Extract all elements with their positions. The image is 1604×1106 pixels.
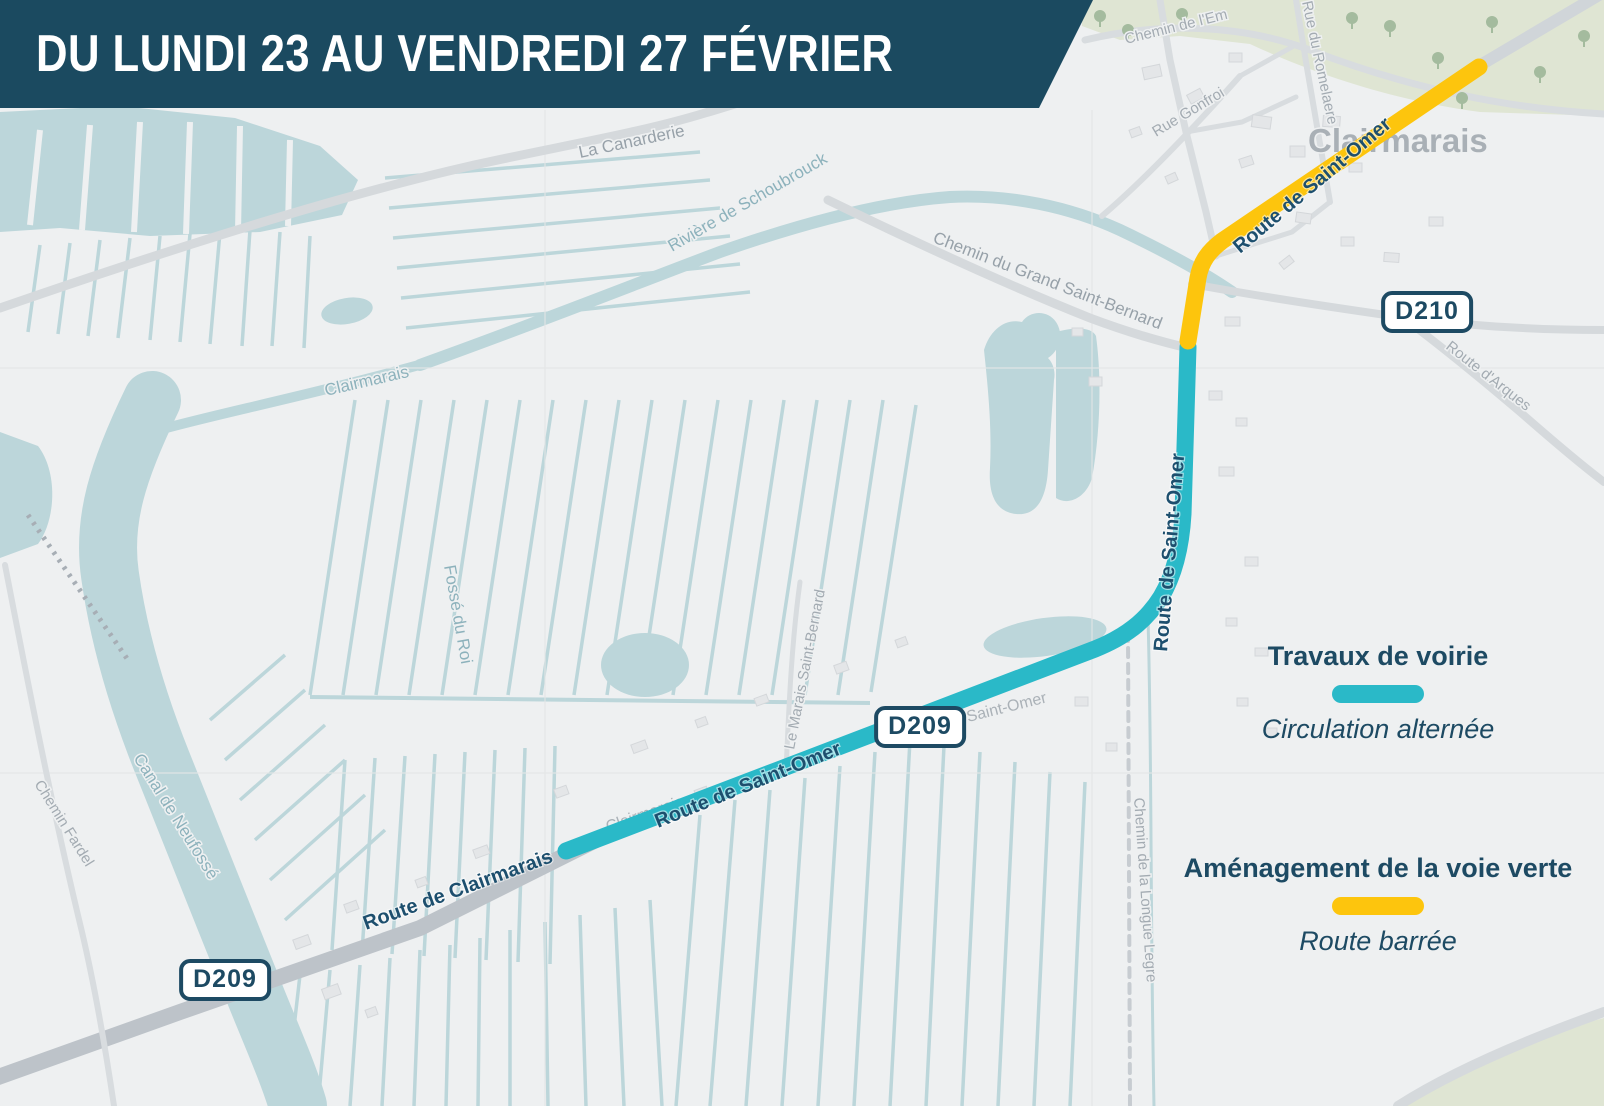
legend-roadworks-title: Travaux de voirie <box>1143 641 1604 672</box>
label-le-marais-st-bernard: Le Marais Saint-Bernard <box>781 588 829 751</box>
legend-greenway: Aménagement de la voie verte Route barré… <box>1143 853 1604 957</box>
legend-greenway-subtitle: Route barrée <box>1143 926 1604 957</box>
legend-roadworks-swatch <box>1332 685 1424 703</box>
label-fosse-du-roi: Fossé du Roi <box>440 563 476 665</box>
banner: DU LUNDI 23 AU VENDREDI 27 FÉVRIER <box>0 0 1093 108</box>
label-route-d-arques: Route d'Arques <box>1443 338 1535 415</box>
legend-roadworks: Travaux de voirie Circulation alternée <box>1143 641 1604 745</box>
legend-roadworks-subtitle: Circulation alternée <box>1143 714 1604 745</box>
label-route-st-omer-diag: Route de Saint-Omer <box>652 738 845 833</box>
route-labels: Route de Clairmarais Route de Saint-Omer… <box>360 113 1396 935</box>
road-badge-d210: D210 <box>1381 291 1473 333</box>
road-badge-d209-west: D209 <box>179 959 271 1001</box>
infographic-map: La Canarderie Rivière de Schoubrouck Che… <box>0 0 1604 1106</box>
banner-title: DU LUNDI 23 AU VENDREDI 27 FÉVRIER <box>36 24 893 84</box>
legend-greenway-title: Aménagement de la voie verte <box>1143 853 1604 884</box>
legend-greenway-swatch <box>1332 897 1424 915</box>
road-badge-d209-mid: D209 <box>874 706 966 748</box>
